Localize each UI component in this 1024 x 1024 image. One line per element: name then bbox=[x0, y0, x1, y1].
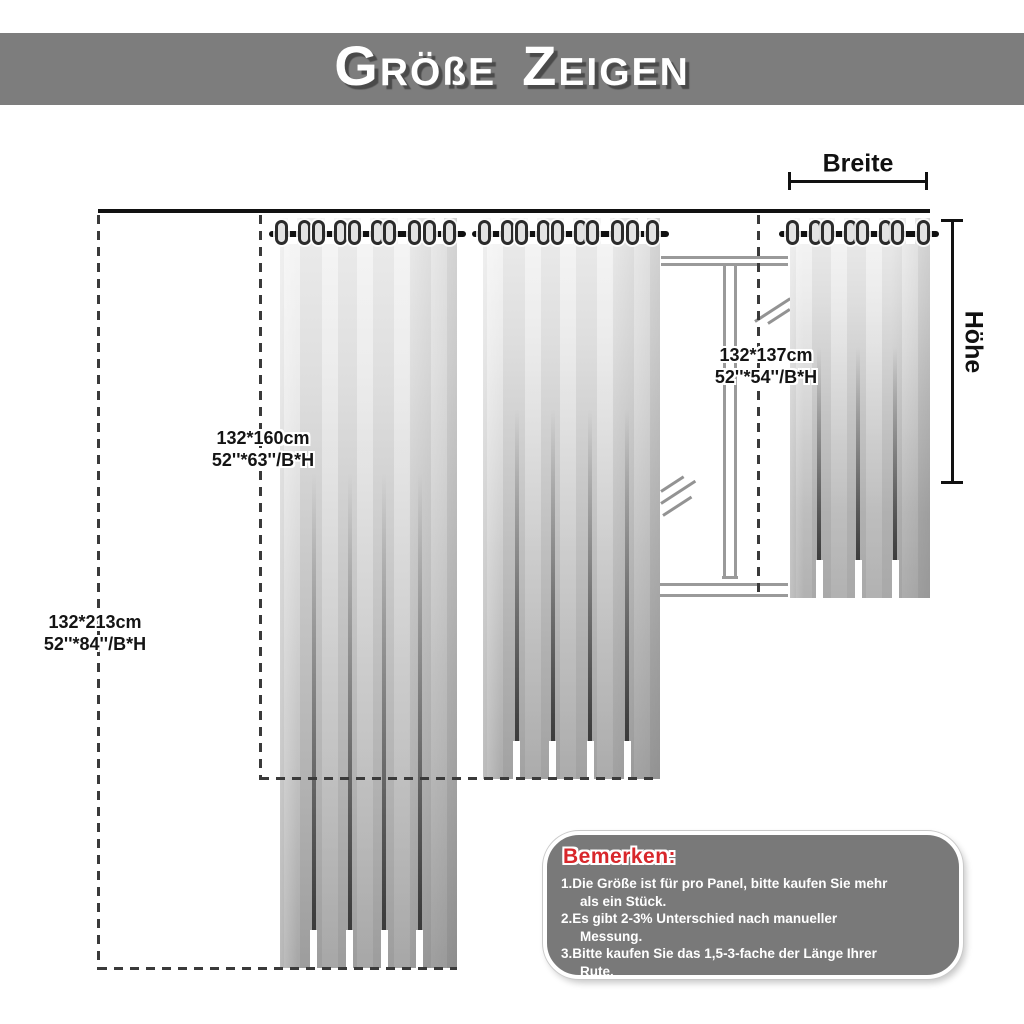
grommet-icon bbox=[891, 220, 904, 245]
grommet-icon bbox=[515, 220, 528, 245]
notes-title: Bemerken: bbox=[563, 845, 951, 869]
glass-shine-icon bbox=[660, 480, 696, 505]
dash-guide-horizontal-160 bbox=[260, 777, 660, 780]
grommet-icon bbox=[917, 220, 930, 245]
size-cm-160: 132*160cm bbox=[216, 428, 309, 448]
width-measure-label: Breite bbox=[823, 150, 894, 179]
dash-guide-vertical-213 bbox=[97, 215, 100, 970]
grommet-icon bbox=[646, 220, 659, 245]
grommet-icon bbox=[348, 220, 361, 245]
window-sill-top bbox=[660, 583, 788, 586]
window-mullion-cap bbox=[722, 576, 738, 579]
grommet-icon bbox=[856, 220, 869, 245]
grommet-icon bbox=[312, 220, 325, 245]
hem-notch bbox=[513, 741, 520, 779]
hem-notch bbox=[381, 930, 388, 968]
grommet-icon bbox=[551, 220, 564, 245]
curtain-panel-160 bbox=[483, 218, 660, 779]
curtain-panel-213 bbox=[280, 218, 457, 968]
title-letters: Z bbox=[522, 33, 558, 99]
title-letters: RÖßE bbox=[380, 40, 496, 106]
grommet-icon bbox=[844, 220, 857, 245]
hem-notch bbox=[549, 741, 556, 779]
dash-guide-horizontal-213 bbox=[98, 967, 457, 970]
curtain-size-label-160: 132*160cm 52''*63''/B*H bbox=[212, 427, 314, 471]
hem-notch bbox=[310, 930, 317, 968]
size-diagram: GRÖßEZEIGEN 132*213cm 52''*84''/B*H 132*… bbox=[0, 0, 1024, 1024]
size-cm-213: 132*213cm bbox=[48, 612, 141, 632]
grommet-icon bbox=[275, 220, 288, 245]
grommet-icon bbox=[611, 220, 624, 245]
curtain-rod bbox=[98, 209, 930, 213]
dash-guide-vertical-137 bbox=[757, 215, 760, 599]
grommet-icon bbox=[423, 220, 436, 245]
dash-guide-vertical-160 bbox=[259, 215, 262, 780]
size-inch-213: 52''*84''/B*H bbox=[44, 634, 146, 654]
note-item: 2.Es gibt 2-3% Unterschied nach manuelle… bbox=[561, 910, 951, 945]
curtain-panel-137 bbox=[790, 218, 930, 598]
hem-notch bbox=[624, 741, 631, 779]
grommet-icon bbox=[537, 220, 550, 245]
grommet-icon bbox=[574, 220, 587, 245]
fabric-shading bbox=[280, 218, 457, 968]
grommet-icon bbox=[478, 220, 491, 245]
grommet-icon bbox=[383, 220, 396, 245]
grommet-icon bbox=[586, 220, 599, 245]
banner: GRÖßEZEIGEN bbox=[0, 33, 1024, 105]
height-measure-cap-bottom bbox=[941, 481, 963, 484]
height-measure-line bbox=[951, 220, 954, 484]
width-measure-tick-right bbox=[925, 172, 928, 190]
size-inch-137: 52''*54''/B*H bbox=[715, 367, 817, 387]
note-item: 3.Bitte kaufen Sie das 1,5-3-fache der L… bbox=[561, 945, 951, 980]
window-top-bar bbox=[661, 256, 788, 259]
grommet-icon bbox=[408, 220, 421, 245]
grommet-icon bbox=[879, 220, 892, 245]
note-item: 1.Die Größe ist für pro Panel, bitte kau… bbox=[561, 875, 951, 910]
title-letters: G bbox=[334, 33, 380, 99]
window-sill-bottom bbox=[660, 594, 788, 597]
grommet-icon bbox=[809, 220, 822, 245]
height-measure-label: Höhe bbox=[959, 311, 988, 374]
window-mullion-right bbox=[734, 266, 737, 578]
grommet-icon bbox=[821, 220, 834, 245]
hem-notch bbox=[346, 930, 353, 968]
hem-notch bbox=[892, 560, 899, 598]
hem-notch bbox=[855, 560, 862, 598]
grommet-icon bbox=[371, 220, 384, 245]
curtain-size-label-137: 132*137cm 52''*54''/B*H bbox=[715, 344, 817, 388]
grommet-icon bbox=[786, 220, 799, 245]
hem-notch bbox=[587, 741, 594, 779]
title-letters: EIGEN bbox=[558, 40, 689, 106]
notes-box: Bemerken: 1.Die Größe ist für pro Panel,… bbox=[543, 831, 963, 979]
page-title: GRÖßEZEIGEN bbox=[334, 33, 690, 106]
window-mullion-left bbox=[723, 266, 726, 578]
grommet-icon bbox=[298, 220, 311, 245]
title-word: GRÖßE bbox=[334, 33, 496, 106]
title-word: ZEIGEN bbox=[522, 33, 690, 106]
width-measure-line bbox=[788, 180, 928, 183]
hem-notch bbox=[416, 930, 423, 968]
grommet-icon bbox=[501, 220, 514, 245]
size-cm-137: 132*137cm bbox=[719, 345, 812, 365]
hem-notch bbox=[816, 560, 823, 598]
curtain-size-label-213: 132*213cm 52''*84''/B*H bbox=[44, 611, 146, 655]
grommet-icon bbox=[334, 220, 347, 245]
width-measure-tick-left bbox=[788, 172, 791, 190]
notes-list: 1.Die Größe ist für pro Panel, bitte kau… bbox=[561, 875, 951, 980]
fabric-shading bbox=[483, 218, 660, 779]
fabric-shading bbox=[790, 218, 930, 598]
size-inch-160: 52''*63''/B*H bbox=[212, 450, 314, 470]
height-measure-cap-top bbox=[941, 219, 963, 222]
grommet-icon bbox=[443, 220, 456, 245]
grommet-icon bbox=[626, 220, 639, 245]
